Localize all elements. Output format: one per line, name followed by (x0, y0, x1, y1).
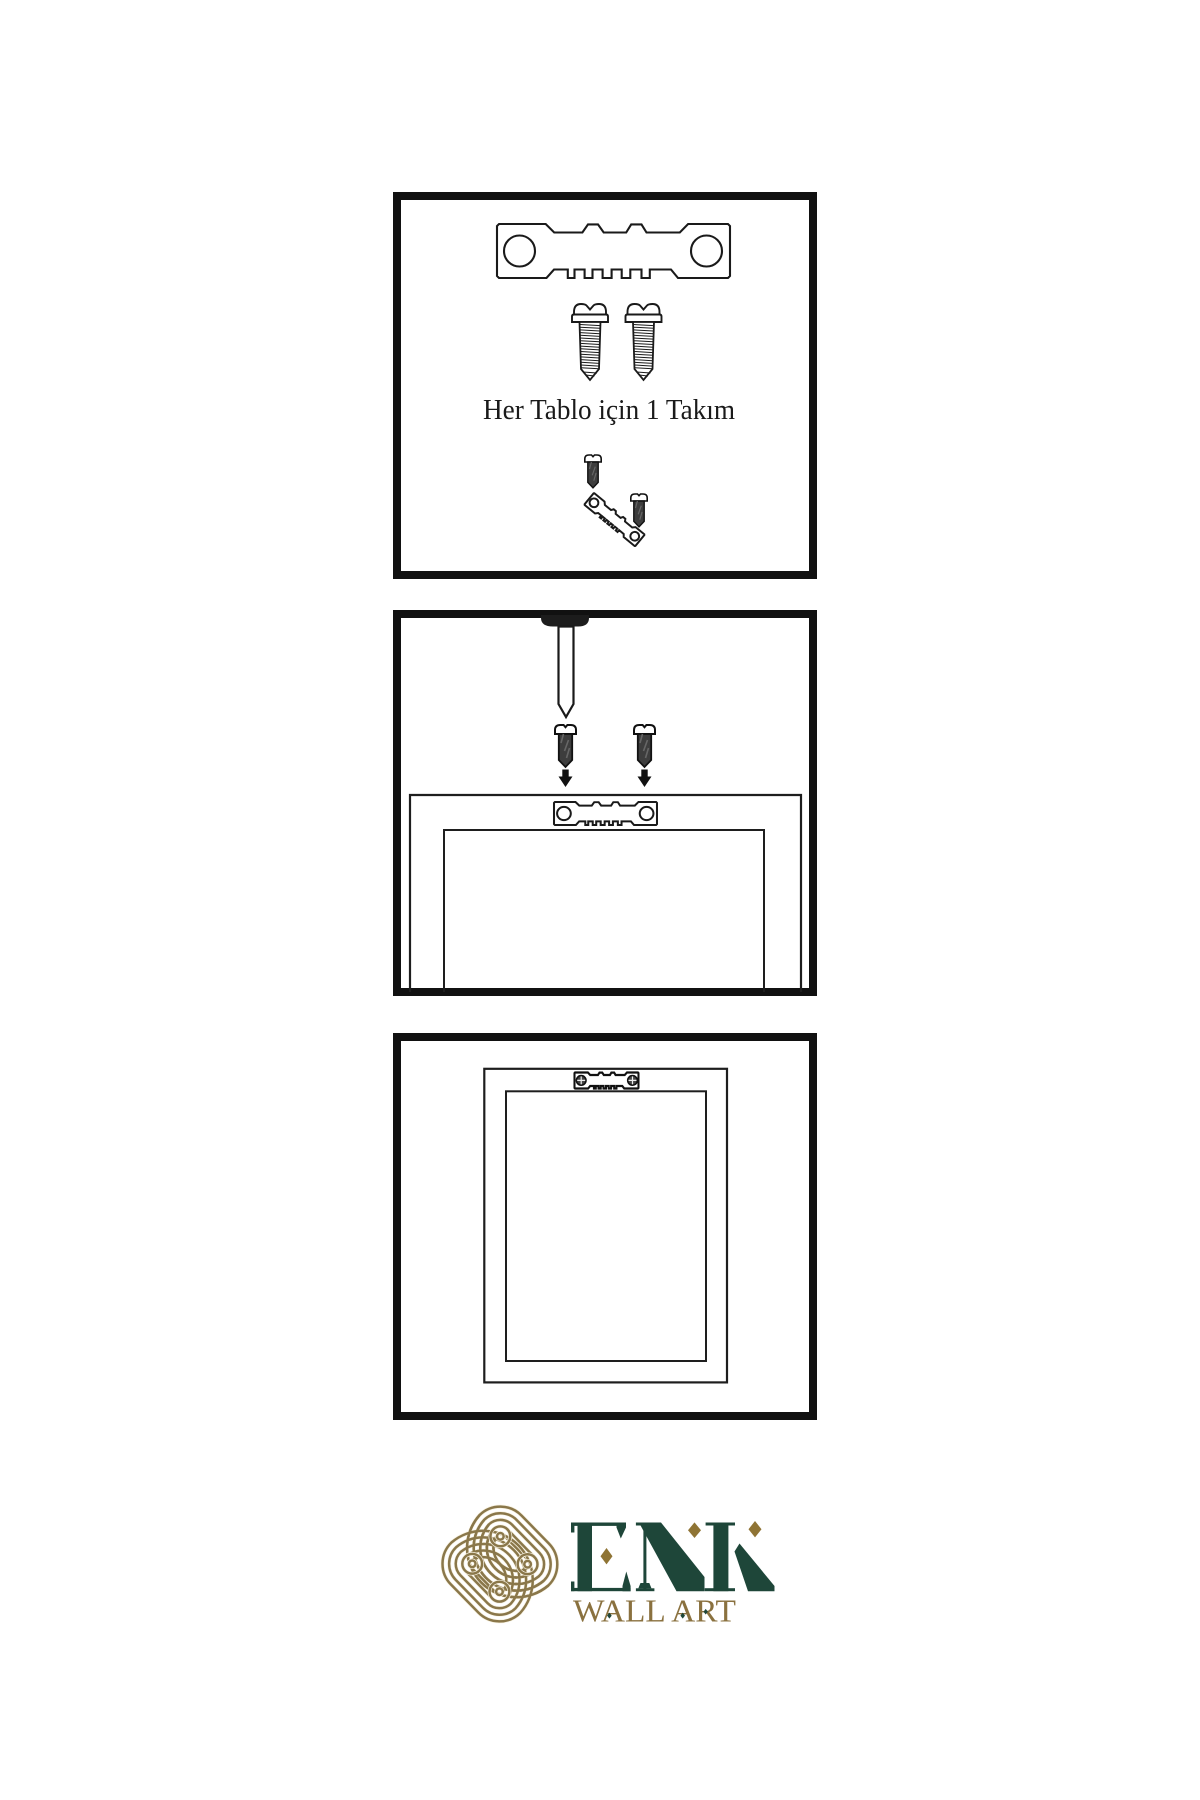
svg-text:WALL ART: WALL ART (573, 1594, 736, 1629)
svg-text:Her Tablo için 1 Takım: Her Tablo için 1 Takım (483, 394, 735, 426)
